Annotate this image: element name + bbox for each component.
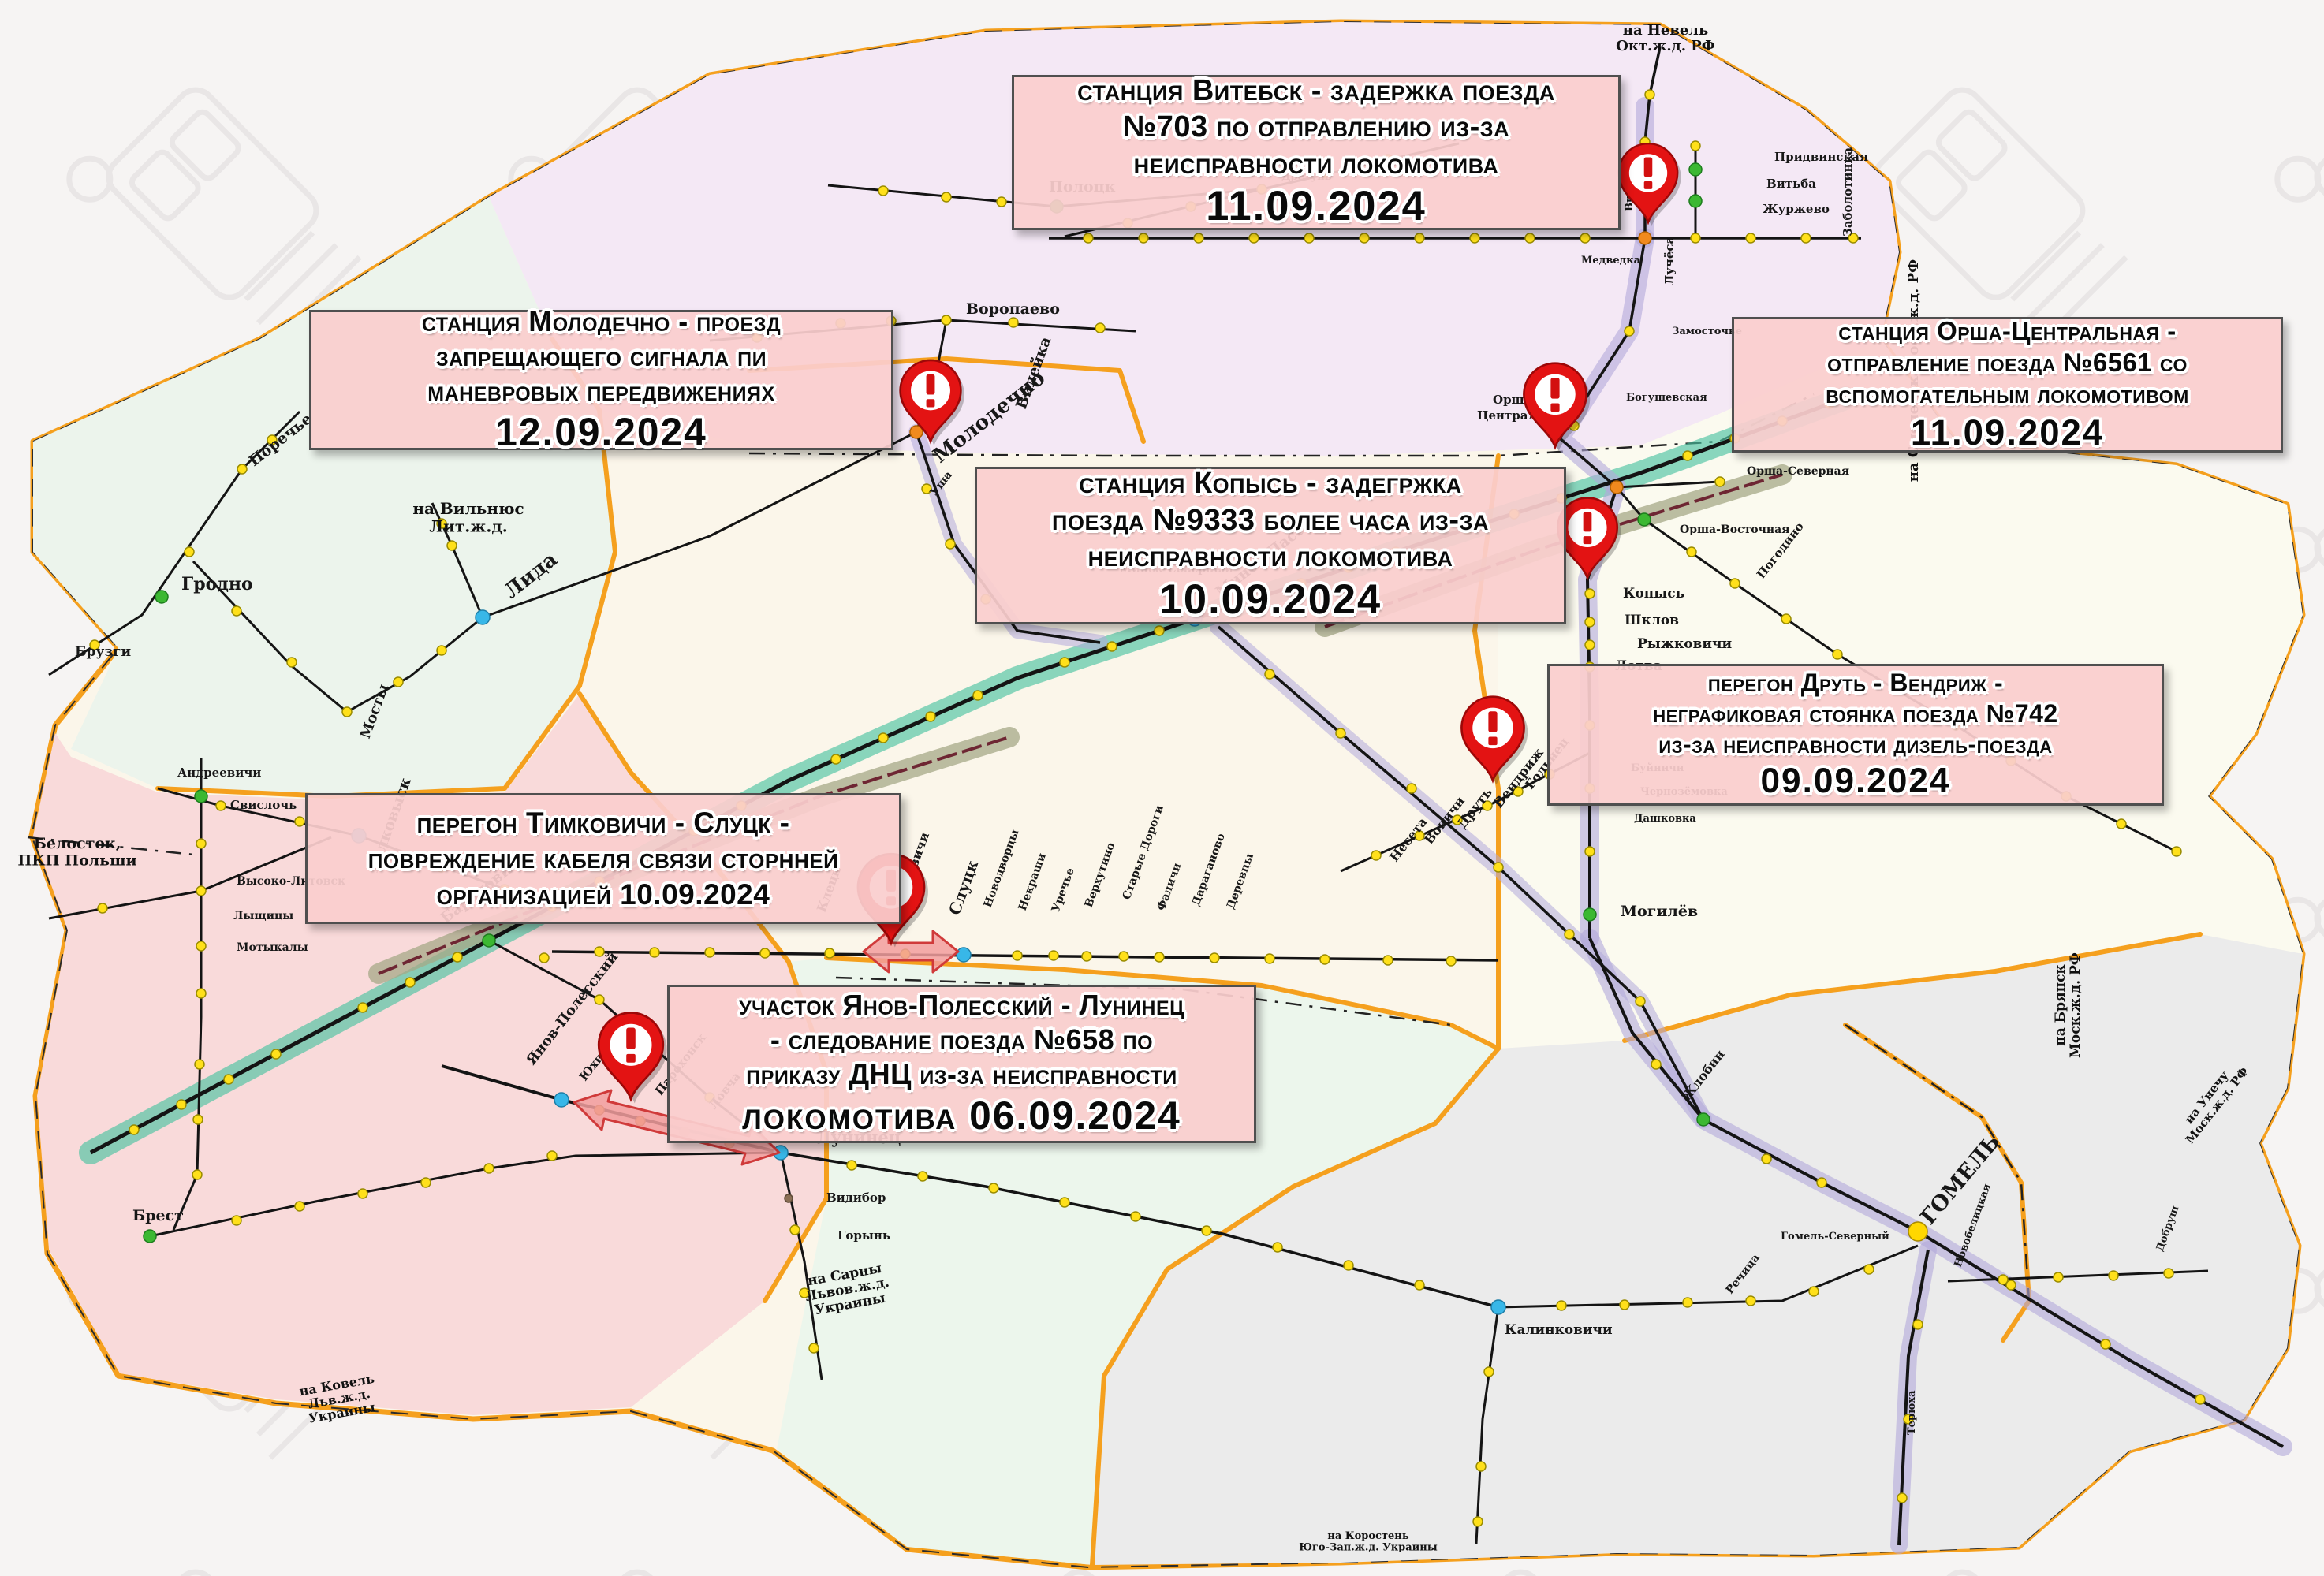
incident-text: маневровых передвижениях [319,374,883,408]
station-dot [825,948,834,958]
incident-callout-vitebsk: станция Витебск - задержка поезда №703 п… [1012,75,1621,230]
station-dot [224,1075,233,1084]
station-dot [785,1194,793,1202]
incident-callout-molodechno: станция Молодечно - проезд запрещающего … [309,310,893,450]
station-dot [847,1161,856,1170]
station-dot [1689,163,1702,176]
station-dot [1060,1198,1069,1207]
station-dot [1194,233,1203,243]
station-dot [1084,233,1093,243]
incident-text: вспомогательным локомотивом [1742,378,2273,410]
station-dot [997,197,1006,207]
incident-date: 10.09.2024 [985,576,1556,626]
station-dot [185,547,194,557]
station-dot [957,948,971,962]
station-dot [1913,1320,1923,1329]
incident-date: 11.09.2024 [1022,182,1610,233]
station-dot [1620,1300,1629,1310]
station-dot [1625,326,1634,336]
station-dot [394,677,403,687]
station-label: Копысь [1623,586,1684,602]
station-dot [946,539,955,549]
station-dot [1273,1243,1282,1252]
incident-text: перегон Тимковичи - Слуцк - [315,805,891,840]
station-dot [1998,1275,2008,1284]
station-label: Журжево [1763,202,1830,216]
exclamation-icon [1644,158,1653,177]
station-dot [1336,728,1345,738]
station-dot [1864,1265,1874,1274]
incident-text: станция Витебск - задержка поезда [1022,73,1610,109]
incident-text: станция Молодечно - проезд [319,304,883,339]
station-label: Орша-Восточная [1680,523,1790,536]
station-dot [1013,951,1022,960]
station-dot [98,903,107,913]
incident-date: 12.09.2024 [319,408,883,456]
station-dot [1645,90,1654,99]
incident-text: повреждение кабеля связи сторнней [315,840,891,876]
station-dot [1060,658,1069,667]
station-dot [760,948,770,958]
station-dot [705,948,714,957]
station-label: Калинковичи [1505,1322,1613,1338]
station-dot [483,934,495,947]
station-dot [1107,642,1117,651]
incident-text: неисправности локомотива [1022,146,1610,182]
station-dot [1265,669,1274,679]
incident-text: участок Янов-Полесский - Лунинец [677,988,1246,1023]
station-dot [1473,1517,1483,1526]
station-dot [1557,1301,1566,1310]
incident-text: №703 по отправлению из-за [1022,109,1610,145]
station-dot [476,610,490,624]
incident-callout-yanov-luninets: участок Янов-Полесский - Лунинец - следо… [667,985,1256,1143]
station-dot [358,1003,367,1012]
station-dot [554,1093,569,1107]
station-dot [595,947,604,956]
station-dot [192,1170,202,1179]
station-dot [447,541,457,550]
station-dot [878,186,888,196]
exit-label: на ВильнюсЛит.ж.д. [412,499,524,535]
station-dot [196,941,206,951]
station-dot [1897,1493,1907,1503]
station-dot [1585,589,1595,598]
incident-text: запрещающего сигнала пи [319,339,883,374]
station-dot [1585,847,1595,856]
station-dot [1082,952,1091,961]
station-label: Гродно [181,574,253,594]
station-label: Горынь [837,1228,890,1243]
incident-text: поезда №9333 более часа из-за [985,502,1556,538]
station-label: Гомель-Северный [1781,1231,1889,1243]
incident-date: 11.09.2024 [1742,411,2273,455]
station-dot [1683,1298,1692,1307]
station-label: Мотыкалы [237,941,308,954]
exit-label: на БрянскМоск.ж.д. РФ [2053,952,2083,1058]
station-dot [1009,318,1018,327]
station-dot [2164,1269,2173,1278]
station-dot [1344,1261,1353,1270]
station-label: Видибор [826,1190,886,1205]
station-dot [1360,233,1369,243]
exclamation-icon [1584,512,1592,531]
station-dot [421,1178,431,1187]
station-dot [650,948,659,957]
station-dot [1049,951,1058,960]
station-dot [177,1100,186,1109]
station-label: Терюха [1906,1390,1918,1435]
exclamation-icon [927,374,935,395]
station-dot [1639,232,1651,244]
station-dot [155,591,168,603]
incident-text: организацией 10.09.2024 [315,877,891,912]
station-dot [1730,579,1740,588]
station-dot [973,691,983,700]
station-dot [1139,233,1148,243]
station-dot [1585,640,1595,650]
station-dot [1610,481,1623,494]
station-dot [1155,626,1164,635]
station-dot [790,1225,800,1235]
station-dot [539,953,549,963]
station-dot [2195,1395,2205,1404]
station-dot [1585,617,1595,627]
exclamation-icon [1488,711,1497,732]
station-dot [1155,952,1164,962]
station-dot [926,712,935,721]
station-dot [1781,614,1791,624]
station-label: Дашковка [1634,813,1696,825]
station-dot [453,952,462,962]
station-dot [1476,1462,1486,1471]
station-dot [1687,547,1696,557]
station-dot [295,817,304,826]
station-dot [1494,863,1503,872]
station-label: Орша-Северная [1747,465,1849,478]
station-dot [1908,1222,1927,1241]
station-dot [342,707,352,717]
station-dot [2109,1271,2118,1280]
station-dot [1801,233,1811,243]
station-dot [1119,952,1128,961]
station-dot [2054,1272,2063,1282]
station-dot [1484,1367,1494,1377]
station-dot [1415,1280,1424,1290]
station-dot [1691,141,1700,151]
station-dot [287,658,297,667]
station-dot [1407,784,1416,793]
station-label: Богушевская [1626,392,1707,404]
station-dot [196,839,206,848]
station-dot [1491,1300,1505,1314]
station-dot [1470,233,1479,243]
station-dot [1584,908,1596,921]
station-dot [144,1230,156,1243]
station-dot [1638,513,1651,526]
station-dot [809,1343,819,1353]
station-dot [1202,1226,1211,1235]
station-dot [358,1189,367,1198]
station-dot [2117,819,2126,829]
station-dot [1525,233,1535,243]
station-dot [237,464,247,474]
station-label: Медведка [1581,255,1641,266]
incident-text: отправление поезда №6561 со [1742,347,2273,378]
station-dot [1383,956,1393,965]
station-dot [595,995,604,1004]
station-dot [405,978,415,987]
station-dot [484,1164,494,1173]
station-label: Могилёв [1621,903,1698,920]
station-dot [1415,233,1424,243]
station-dot [271,1049,281,1059]
incident-text: приказу ДНЦ из-за неисправности [677,1057,1246,1092]
station-dot [232,1216,241,1225]
station-dot [1762,1154,1771,1164]
station-dot [942,315,951,325]
station-label: Брузги [75,644,132,660]
station-dot [232,606,241,616]
incident-text: станция Копысь - задегржка [985,465,1556,501]
station-dot [1446,956,1456,966]
station-label: Рыжковичи [1637,636,1732,652]
incident-callout-drut-vendrizh: перегон Друть - Вендриж - неграфиковая с… [1547,664,2164,806]
incident-text: станция Орша-Центральная - [1742,315,2273,347]
station-dot [295,1202,304,1211]
incident-text: неграфиковая стоянка поезда №742 [1557,699,2154,729]
station-label: Заболотинка [1841,147,1855,237]
station-dot [196,989,206,998]
station-dot [1689,195,1702,207]
incident-text: из-за неисправности дизель-поезда [1557,729,2154,760]
station-dot [1304,233,1314,243]
exit-label: Белосток,ПКП Польши [17,835,136,869]
station-dot [918,1172,927,1181]
station-dot [1833,650,1842,659]
station-dot [1371,851,1381,860]
station-dot [547,1151,557,1161]
station-dot [196,886,206,896]
station-dot [195,790,207,803]
station-dot [989,1183,998,1193]
station-dot [1746,233,1755,243]
station-dot [1565,930,1574,939]
incident-date: 09.09.2024 [1557,760,2154,803]
station-dot [1746,1296,1755,1306]
railway-incident-map: МолодечноВилейкаВоропаевоУшаЛидаГродноПо… [0,0,2324,1576]
station-dot [1265,954,1274,963]
station-dot [1580,233,1590,243]
station-dot [1691,233,1700,243]
incident-callout-kopys: станция Копысь - задегржка поезда №9333 … [975,467,1566,624]
station-dot [1683,451,1692,460]
station-dot [2101,1339,2110,1349]
station-dot [2172,847,2181,856]
station-dot [1697,1113,1710,1126]
station-dot [1809,1287,1819,1296]
station-label: Брест [132,1207,184,1224]
exclamation-icon [1550,378,1559,398]
station-dot [1095,323,1105,333]
station-label: Лыщицы [233,910,293,922]
exclamation-icon [626,1028,636,1049]
station-dot [195,1060,204,1069]
station-dot [437,646,446,655]
station-dot [1249,233,1259,243]
station-label: Витьба [1766,177,1816,191]
station-label: Воропаево [966,300,1060,318]
incident-text: неисправности локомотива [985,538,1556,575]
station-label: Лучёса [1662,236,1677,285]
station-label: Свислочь [230,798,297,812]
station-dot [878,733,888,743]
incident-text: - следование поезда №658 по [677,1023,1246,1057]
station-dot [193,1115,203,1124]
incident-callout-orsha: станция Орша-Центральная - отправление п… [1732,317,2283,453]
station-dot [1320,955,1330,964]
station-dot [1715,477,1725,486]
station-dot [1817,1178,1826,1187]
incident-date: локомотива 06.09.2024 [677,1092,1246,1140]
exit-label: на НевельОкт.ж.д. РФ [1616,22,1715,54]
station-dot [1210,953,1219,963]
station-label: Андреевичи [177,766,261,780]
station-dot [1131,1212,1140,1221]
station-dot [831,754,841,764]
incident-text: перегон Друть - Вендриж - [1557,668,2154,699]
incident-callout-timkovichi-slutsk: перегон Тимковичи - Слуцк - повреждение … [305,793,901,924]
station-dot [942,192,951,202]
station-dot [1651,1060,1661,1069]
station-label: Шклов [1625,613,1679,628]
station-dot [129,1125,139,1134]
station-dot [216,801,226,810]
station-dot [1636,997,1645,1006]
